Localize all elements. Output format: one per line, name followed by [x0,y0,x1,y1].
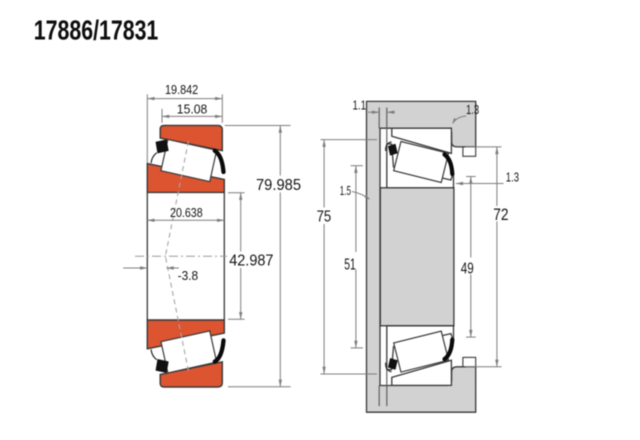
svg-text:1.5: 1.5 [340,183,351,198]
svg-text:15.08: 15.08 [177,101,208,116]
svg-text:72: 72 [493,205,508,224]
svg-text:1.3: 1.3 [506,170,519,185]
svg-text:20.638: 20.638 [170,205,203,220]
svg-text:79.985: 79.985 [256,177,301,194]
svg-text:49: 49 [461,261,474,278]
svg-text:51: 51 [344,257,356,274]
svg-text:75: 75 [317,209,332,226]
svg-text:19.842: 19.842 [165,82,198,97]
svg-text:42.987: 42.987 [229,253,273,270]
svg-text:17886/17831: 17886/17831 [34,15,159,46]
svg-text:1.3: 1.3 [466,102,479,117]
svg-text:1.1: 1.1 [353,98,367,113]
svg-text:-3.8: -3.8 [178,268,199,283]
